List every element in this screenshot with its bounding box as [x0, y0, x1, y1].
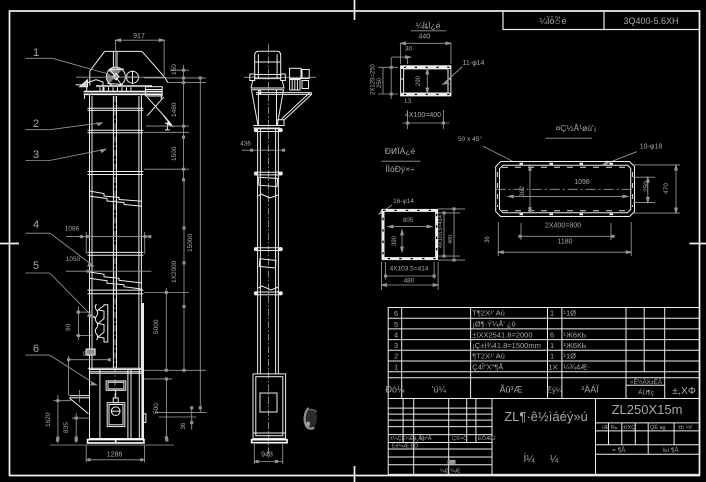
svg-text:¡Ø¶·Ý¼Å' ¿ò: ¡Ø¶·Ý¼Å' ¿ò	[472, 320, 515, 329]
svg-text:5: 5	[33, 260, 39, 272]
svg-text:4X100=400: 4X100=400	[405, 112, 441, 119]
svg-text:10-φ18: 10-φ18	[640, 144, 663, 151]
svg-text:440: 440	[418, 34, 430, 41]
svg-text:5: 5	[394, 320, 398, 329]
svg-text:3: 3	[394, 341, 398, 350]
svg-text:362: 362	[519, 186, 526, 197]
svg-text:ÈÕÆÚ: ÈÕÆÚ	[478, 435, 495, 442]
svg-text:¡Ç±ì¾41.8=1500mm: ¡Ç±ì¾41.8=1500mm	[472, 341, 541, 350]
svg-text:6: 6	[394, 309, 398, 318]
svg-text:Ьì ¶Å: Ьì ¶Å	[663, 445, 679, 454]
svg-text:2: 2	[33, 118, 39, 130]
svg-text:¶Т2X¹' Aù: ¶Т2X¹' Aù	[472, 352, 505, 361]
svg-text:250: 250	[377, 77, 383, 88]
svg-text:50 x 45°: 50 x 45°	[458, 135, 482, 143]
svg-text:980: 980	[83, 351, 94, 358]
svg-text:6: 6	[550, 331, 554, 340]
svg-text:±h ¼f: ±h ¼f	[678, 425, 692, 431]
svg-text:5000: 5000	[153, 319, 160, 334]
svg-text:L3: L3	[405, 99, 412, 105]
svg-text:±ìXQ: ±ìXQ	[623, 425, 636, 431]
svg-text:1620: 1620	[45, 412, 52, 427]
svg-text:ÍÌòÐý×÷: ÍÌòÐý×÷	[385, 164, 415, 174]
svg-text:±,XФ: ±,XФ	[672, 385, 696, 397]
svg-text:250: 250	[643, 181, 650, 192]
svg-text:4: 4	[33, 219, 39, 231]
svg-text:Éè¼Æ ÈÕ: Éè¼Æ ÈÕ	[392, 443, 419, 450]
svg-text:1050: 1050	[66, 256, 81, 263]
svg-text:Ãû³Æ: Ãû³Æ	[499, 385, 522, 395]
svg-text:1500: 1500	[171, 146, 178, 161]
svg-text:480: 480	[404, 278, 415, 285]
svg-text:ZL¶·ê½ìáéý»ú: ZL¶·ê½ìáéý»ú	[504, 409, 588, 424]
svg-text:390: 390	[392, 235, 398, 246]
svg-text:Êý¼: Êý¼	[547, 386, 563, 395]
svg-text:948: 948	[261, 452, 273, 459]
svg-text:1: 1	[33, 47, 39, 59]
svg-text:4: 4	[394, 331, 398, 340]
svg-text:¹Ж6КЬ: ¹Ж6КЬ	[564, 341, 587, 350]
svg-text:= ¶Å: = ¶Å	[612, 445, 626, 454]
svg-text:±ìXX2541.8=2000: ±ìXX2541.8=2000	[472, 331, 532, 340]
svg-text:ZL250X15m: ZL250X15m	[612, 402, 683, 417]
svg-text:15000: 15000	[187, 234, 194, 252]
svg-text:1: 1	[550, 352, 554, 361]
svg-text:6: 6	[33, 343, 39, 355]
svg-text:¹1Ø: ¹1Ø	[564, 309, 577, 318]
svg-text:4X103.5=414: 4X103.5=414	[390, 266, 429, 273]
svg-text:«Ê½ÅX±ÊÂ: «Ê½ÅX±ÊÂ	[630, 378, 662, 386]
svg-text:íÆ Rь: íÆ Rь	[602, 425, 618, 431]
svg-text:¹1Ø: ¹1Ø	[564, 352, 577, 361]
svg-text:QÊ ag: QÊ ag	[650, 423, 666, 431]
svg-text:Т¶2X¹' Aù: Т¶2X¹' Aù	[472, 309, 505, 318]
svg-text:Ç4Î"X"¶Å: Ç4Î"X"¶Å	[472, 363, 503, 372]
svg-text:1086: 1086	[65, 226, 80, 233]
svg-text:470: 470	[663, 183, 670, 194]
svg-text:290: 290	[416, 75, 422, 86]
svg-text:²ÄÁÏ: ²ÄÁÏ	[581, 385, 599, 395]
svg-text:2X400=800: 2X400=800	[545, 223, 581, 230]
svg-text:¹Ж6КЬ: ¹Ж6КЬ	[564, 331, 587, 340]
svg-text:Í¼: Í¼	[523, 452, 535, 465]
svg-text:3Q400-5.6ХН: 3Q400-5.6ХН	[623, 16, 678, 26]
svg-text:¼: ¼	[550, 453, 559, 465]
svg-text:ÐͶÏÁ¿é: ÐͶÏÁ¿é	[385, 146, 416, 156]
svg-text:¼ÏȶÏ¿é: ¼ÏȶÏ¿é	[416, 21, 441, 31]
svg-text:1: 1	[550, 309, 554, 318]
svg-text:3: 3	[33, 149, 39, 161]
svg-text:±¼ÇË¼Êä¸Ä: ±¼ÇË¼Êä¸Ä	[390, 434, 422, 442]
svg-text:36: 36	[181, 422, 187, 429]
svg-text:480: 480	[448, 235, 454, 244]
svg-text:¼¾4Æ·: ¼¾4Æ·	[564, 363, 591, 372]
svg-text:Ç©×Ö: Ç©×Ö	[452, 435, 468, 442]
svg-text:835: 835	[63, 422, 70, 433]
svg-text:¼Ø ¼Æ: ¼Ø ¼Æ	[440, 469, 461, 475]
svg-text:500: 500	[153, 403, 160, 414]
svg-text:90: 90	[65, 323, 72, 331]
svg-text:1098: 1098	[574, 179, 590, 186]
svg-text:805: 805	[403, 218, 414, 224]
svg-text:1: 1	[394, 363, 398, 372]
svg-text:1X: 1X	[549, 363, 558, 372]
svg-text:16-φ14: 16-φ14	[393, 198, 414, 205]
svg-text:36: 36	[485, 236, 491, 243]
svg-text:436: 436	[240, 141, 251, 148]
svg-text:150: 150	[171, 64, 178, 75]
svg-text:Ðò¼: Ðò¼	[385, 385, 405, 395]
svg-text:ÁÙ¶ç: ÁÙ¶ç	[638, 388, 655, 397]
svg-text:1286: 1286	[107, 452, 123, 459]
svg-text:1: 1	[550, 341, 554, 350]
svg-text:11-φ14: 11-φ14	[463, 60, 485, 67]
svg-text:ÎļþºÅ: ÎļþºÅ	[419, 435, 432, 442]
svg-text:2X125=250: 2X125=250	[371, 63, 377, 95]
svg-text:4X103.5=414: 4X103.5=414	[438, 215, 444, 248]
svg-text:30: 30	[405, 46, 413, 53]
svg-text:'ú¼: 'ú¼	[432, 385, 447, 395]
svg-text:1X2000: 1X2000	[171, 260, 178, 283]
svg-text:1480: 1480	[171, 102, 178, 117]
svg-text:¼Ïȱꍸé: ¼Ïȱꍸé	[539, 15, 566, 26]
svg-text:2: 2	[394, 352, 398, 361]
svg-text:¤Ç½Å¹øú'¡: ¤Ç½Å¹øú'¡	[556, 123, 597, 133]
svg-text:917: 917	[133, 33, 145, 40]
svg-text:1180: 1180	[557, 239, 572, 246]
